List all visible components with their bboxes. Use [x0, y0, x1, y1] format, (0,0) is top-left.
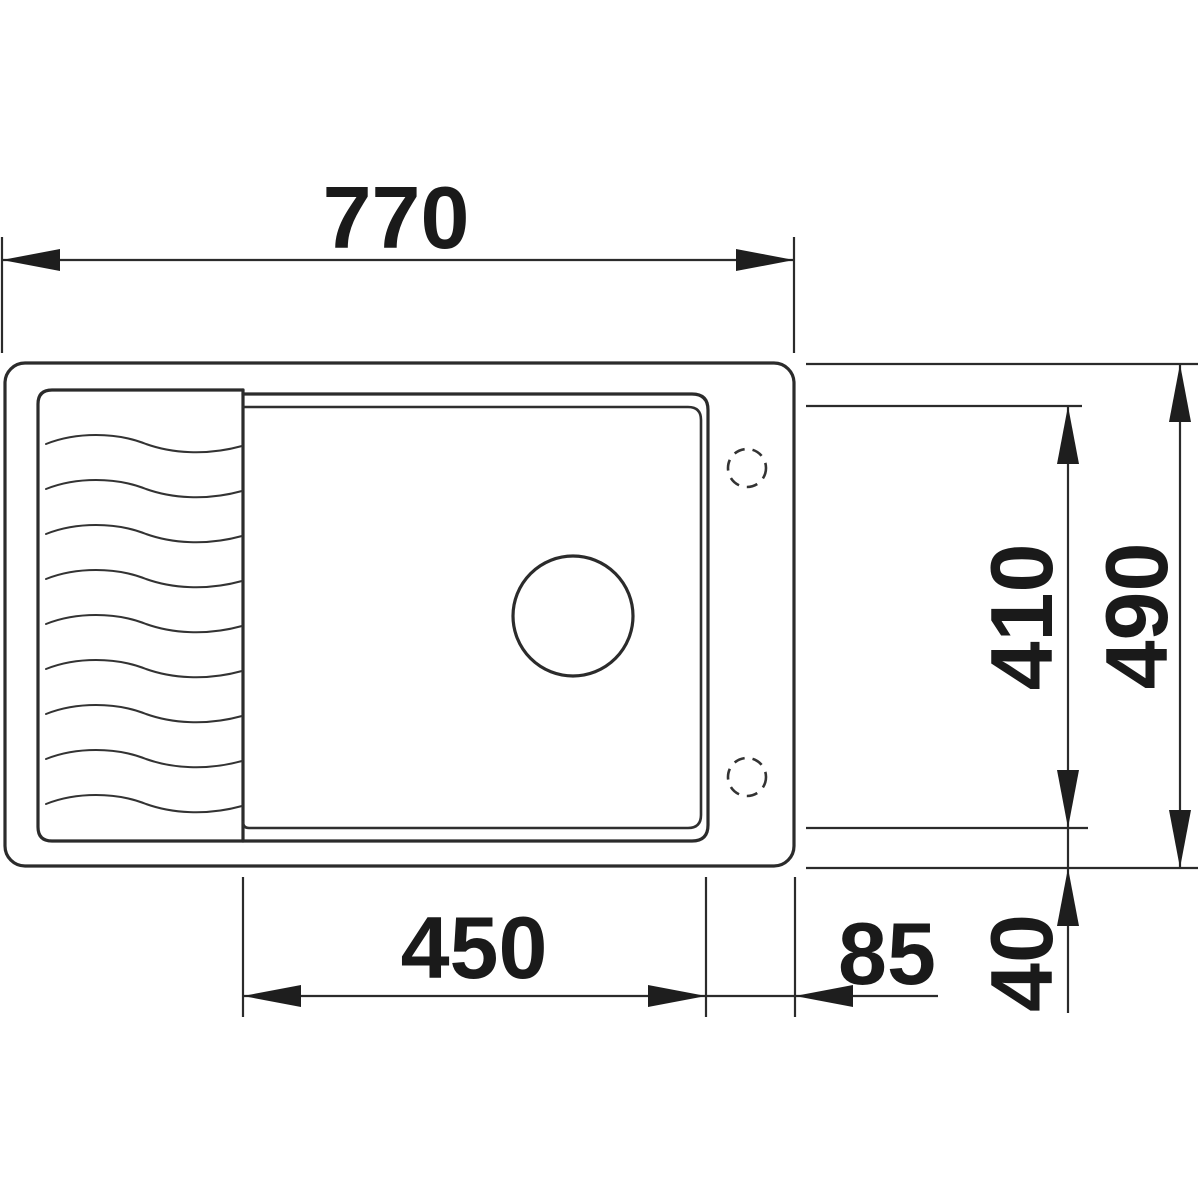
- drainer-area-outline: [38, 390, 243, 841]
- arrow-down-icon: [1057, 770, 1079, 828]
- arrow-down-icon: [1169, 810, 1191, 868]
- drain-hole: [513, 556, 633, 676]
- arrow-left-icon: [243, 985, 301, 1007]
- drainer-wave-line: [46, 795, 242, 812]
- tap-hole-top: [728, 449, 766, 487]
- arrow-right-icon: [648, 985, 706, 1007]
- arrow-up-icon: [1169, 364, 1191, 422]
- dimension-overall-width: 770: [2, 168, 794, 353]
- arrow-right-icon: [736, 249, 794, 271]
- dimension-label-right-rim-width: 85: [838, 904, 936, 1003]
- drainer-wave-line: [46, 750, 242, 767]
- drainer-wave-line: [46, 570, 242, 587]
- drainer-wave-line: [46, 705, 242, 722]
- sink-dimension-drawing: 770 450 85 410 4: [0, 0, 1200, 1200]
- arrow-left-icon: [2, 249, 60, 271]
- drainer-waves: [46, 435, 242, 812]
- drainer-wave-line: [46, 525, 242, 542]
- dimension-label-basin-width: 450: [401, 898, 548, 997]
- dimension-label-basin-depth: 410: [972, 544, 1071, 691]
- dimension-label-bottom-rim-depth: 40: [972, 914, 1071, 1012]
- drainer-wave-line: [46, 615, 242, 632]
- tap-hole-bottom: [728, 758, 766, 796]
- dimension-label-overall-width: 770: [323, 168, 470, 267]
- dimension-label-overall-depth: 490: [1087, 543, 1186, 690]
- drainer-wave-line: [46, 435, 242, 452]
- technical-drawing-page: 770 450 85 410 4: [0, 0, 1200, 1200]
- basin-outer-outline: [243, 394, 708, 841]
- arrow-up-icon: [1057, 406, 1079, 464]
- dimension-basin-width: 450 85: [243, 877, 938, 1017]
- drainer-wave-line: [46, 660, 242, 677]
- sink-body: [5, 363, 794, 866]
- drainer-wave-line: [46, 480, 242, 497]
